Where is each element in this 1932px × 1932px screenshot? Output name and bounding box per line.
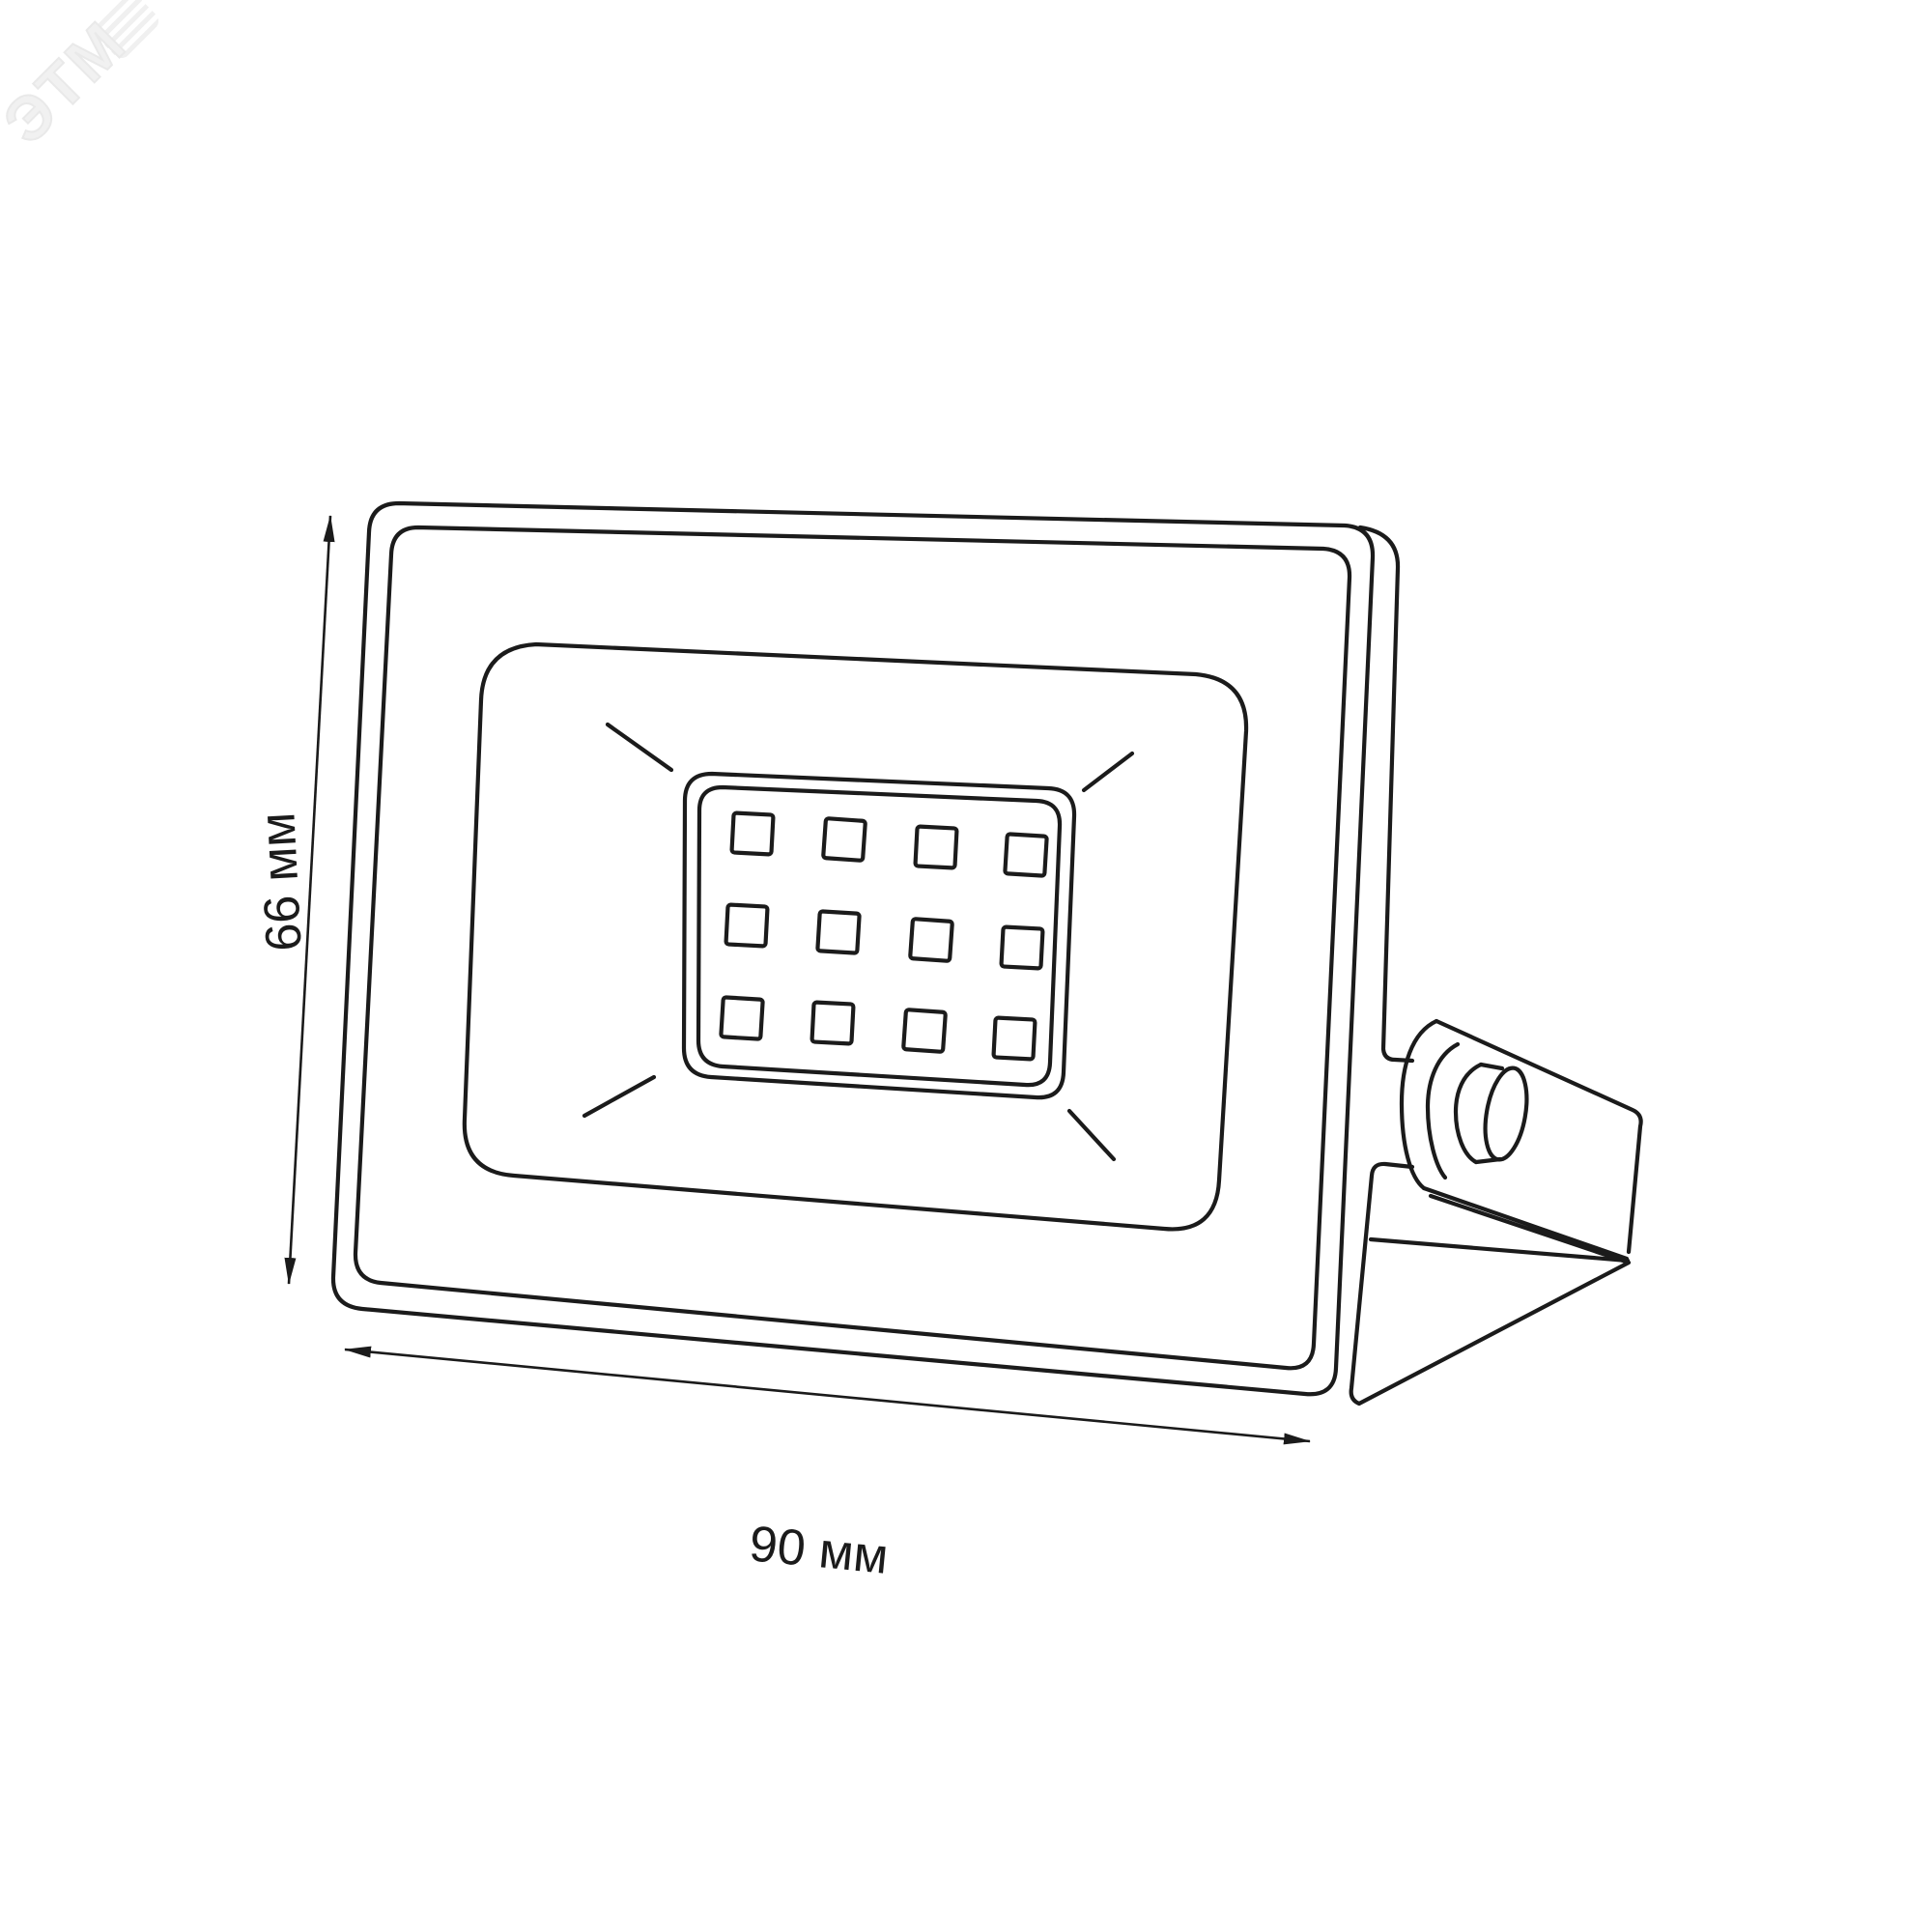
led-chip xyxy=(811,1002,853,1043)
led-chip xyxy=(817,911,859,952)
height-dimension: 66 мм xyxy=(249,516,330,1284)
led-chip xyxy=(731,812,773,854)
corner-mark-top-left xyxy=(608,724,671,770)
led-chip xyxy=(1001,926,1042,968)
led-chip xyxy=(725,904,767,946)
led-chip xyxy=(915,826,956,867)
led-chip xyxy=(903,1009,946,1052)
width-dimension-line xyxy=(345,1350,1310,1441)
led-module xyxy=(684,774,1074,1097)
led-chip-grid xyxy=(721,812,1046,1059)
led-chip xyxy=(910,919,952,961)
technical-drawing-page: ЭТМ xyxy=(0,0,1932,1932)
housing-back-edge xyxy=(1360,527,1412,1061)
corner-mark-top-right xyxy=(1084,753,1132,790)
led-chip xyxy=(1005,834,1046,875)
bracket-cap-outer xyxy=(1402,1021,1436,1188)
bracket-cap-inner xyxy=(1428,1044,1458,1178)
corner-mark-bottom-left xyxy=(584,1077,654,1116)
led-module-frame xyxy=(684,774,1074,1097)
bracket-knob-back-rim xyxy=(1456,1065,1481,1162)
floodlight-drawing: 66 мм 90 мм xyxy=(0,0,1932,1932)
height-dimension-label: 66 мм xyxy=(249,811,312,953)
inner-panel-outline xyxy=(465,644,1246,1229)
led-chip xyxy=(993,1017,1035,1059)
mounting-bracket xyxy=(1402,1021,1641,1262)
front-face-outline xyxy=(333,503,1373,1394)
bracket-knob-face xyxy=(1479,1065,1533,1162)
housing-back-lower-edge xyxy=(1351,1164,1629,1404)
floodlight-body xyxy=(333,503,1629,1404)
width-dimension: 90 мм xyxy=(345,1350,1310,1585)
led-chip xyxy=(823,818,866,861)
corner-mark-bottom-right xyxy=(1069,1111,1114,1159)
bracket-arm xyxy=(1436,1021,1641,1252)
led-chip xyxy=(721,997,762,1038)
width-dimension-label: 90 мм xyxy=(747,1516,891,1585)
